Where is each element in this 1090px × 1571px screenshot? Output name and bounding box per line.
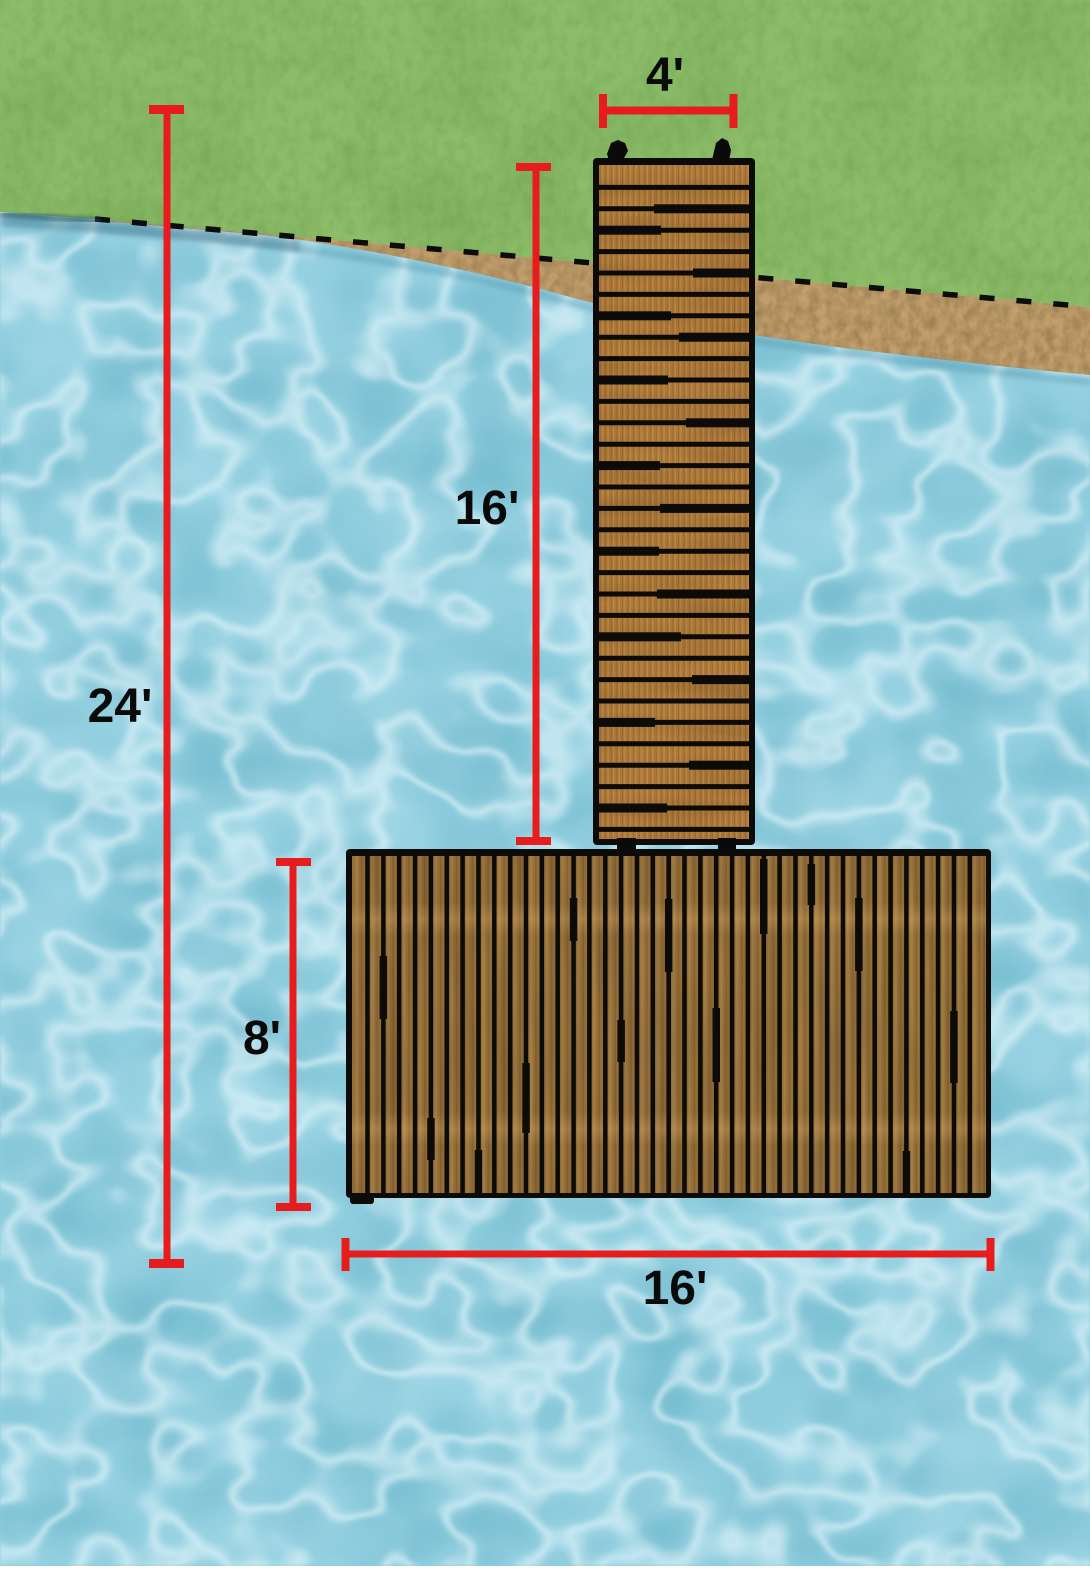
svg-text:8': 8': [243, 1012, 281, 1065]
svg-text:24': 24': [88, 680, 153, 733]
svg-text:16': 16': [455, 482, 520, 535]
svg-text:16': 16': [643, 1262, 708, 1315]
svg-text:4': 4': [646, 49, 684, 102]
